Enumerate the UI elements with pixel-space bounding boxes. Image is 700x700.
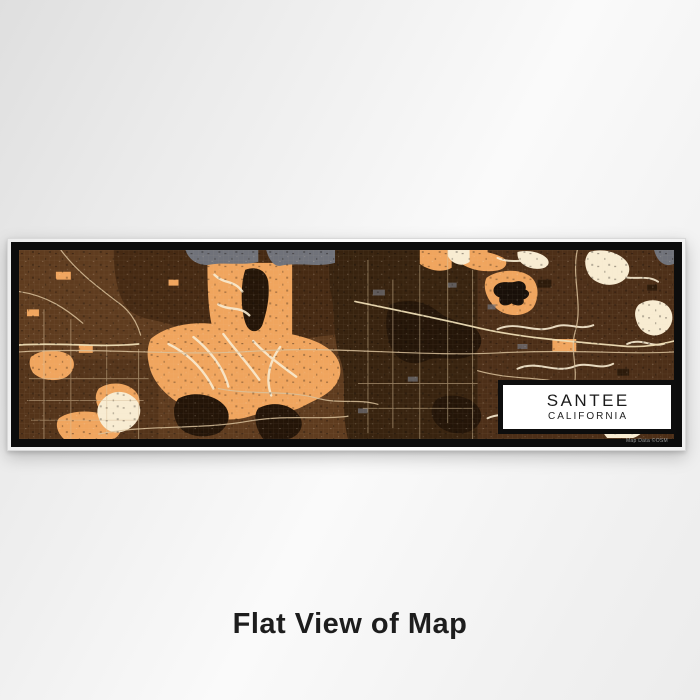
product-caption: Flat View of Map xyxy=(0,608,700,641)
city-label: SANTEE xyxy=(544,392,630,410)
map-attribution: Map Data ©OSM xyxy=(626,438,668,444)
print-frame: SANTEE CALIFORNIA Map Data ©OSM xyxy=(11,242,682,447)
map-print[interactable]: SANTEE CALIFORNIA Map Data ©OSM xyxy=(7,238,686,451)
state-label: CALIFORNIA xyxy=(546,411,628,422)
map-title-plate: SANTEE CALIFORNIA xyxy=(498,380,676,434)
product-photo-backdrop: SANTEE CALIFORNIA Map Data ©OSM Flat Vie… xyxy=(0,0,700,700)
